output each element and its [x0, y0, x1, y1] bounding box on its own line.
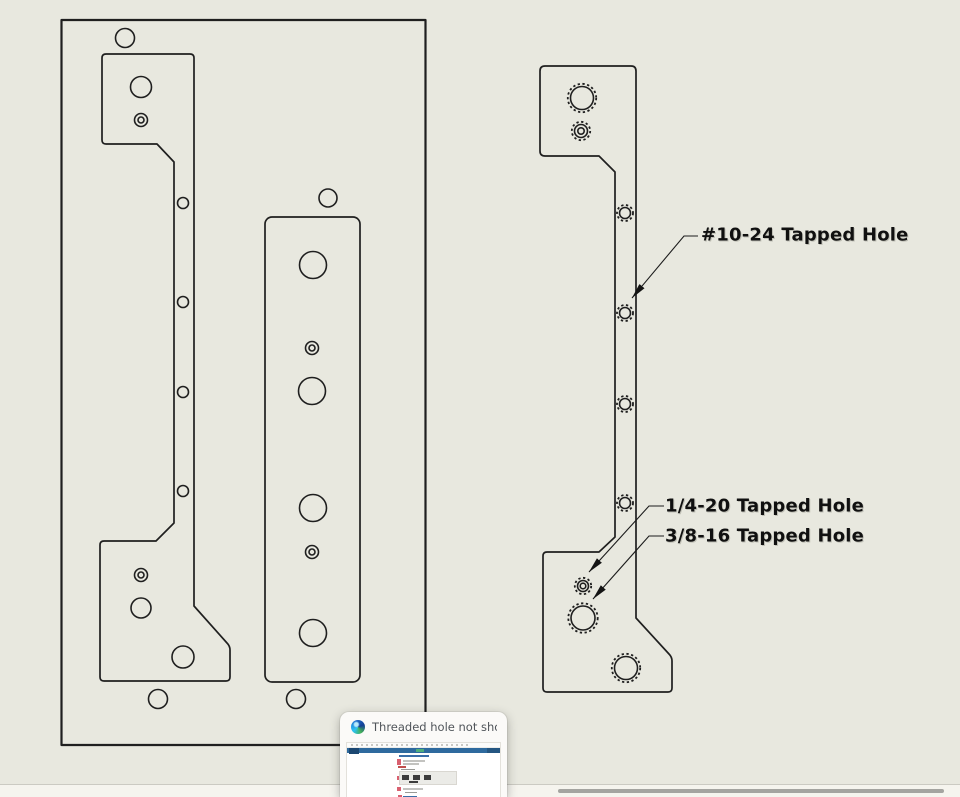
hole[interactable] — [300, 620, 327, 647]
hole[interactable] — [131, 77, 152, 98]
thumb-forum-logo — [349, 748, 359, 754]
hole[interactable] — [138, 117, 144, 123]
cosmetic-thread-rings — [568, 84, 640, 682]
bracket-part-holes — [116, 29, 195, 709]
hole[interactable] — [319, 189, 337, 207]
hole[interactable] — [138, 572, 144, 578]
thumb-text-line — [403, 763, 419, 765]
tapped-hole[interactable] — [578, 581, 589, 592]
thumb-navbar-right — [487, 748, 500, 753]
hole[interactable] — [299, 378, 326, 405]
thumb-quote-box — [399, 771, 457, 785]
hole[interactable] — [172, 646, 194, 668]
hole[interactable] — [309, 549, 315, 555]
popup-header: Threaded hole not showin... — [340, 712, 507, 739]
note-10-24-tapped-hole[interactable]: #10-24 Tapped Hole — [701, 225, 909, 246]
bracket-part-outline[interactable] — [100, 54, 230, 681]
tapped-hole[interactable] — [615, 657, 638, 680]
tapped-hole[interactable] — [620, 399, 631, 410]
cad-drawing — [0, 0, 960, 797]
tapped-hole[interactable] — [571, 87, 594, 110]
hole[interactable] — [135, 114, 148, 127]
edge-tab-preview-popup[interactable]: Threaded hole not showin... — [340, 712, 507, 797]
leader-10-24[interactable] — [632, 236, 698, 298]
leader-3-8-16[interactable] — [593, 536, 664, 599]
tapped-hole[interactable] — [575, 125, 588, 138]
thumb-avatar — [397, 787, 401, 791]
thumb-attachment — [402, 775, 409, 780]
plate-part-holes — [287, 189, 338, 709]
hole[interactable] — [306, 546, 319, 559]
hole[interactable] — [178, 486, 189, 497]
thumb-text-line — [401, 769, 415, 771]
hole[interactable] — [135, 569, 148, 582]
thumb-avatar — [397, 759, 401, 765]
thumb-text-line — [403, 760, 425, 762]
thumb-chrome-text — [351, 744, 471, 746]
hole[interactable] — [116, 29, 135, 48]
hole[interactable] — [178, 297, 189, 308]
tapped-hole[interactable] — [620, 208, 631, 219]
thumb-thread-title — [399, 755, 429, 757]
stock-sheet-outline[interactable] — [62, 20, 426, 745]
plate-part-outline[interactable] — [265, 217, 360, 682]
tapped-hole[interactable] — [620, 308, 631, 319]
hole[interactable] — [300, 495, 327, 522]
hole[interactable] — [131, 598, 151, 618]
note-3-8-16-tapped-hole[interactable]: 3/8-16 Tapped Hole — [665, 526, 864, 547]
thumb-attachment — [413, 775, 420, 780]
solidworks-graphics-area: #10-24 Tapped Hole 1/4-20 Tapped Hole 3/… — [0, 0, 960, 797]
thumb-text-line — [403, 788, 423, 790]
hole[interactable] — [300, 252, 327, 279]
tapped-hole[interactable] — [578, 128, 584, 134]
hole[interactable] — [178, 198, 189, 209]
thumb-green-button — [416, 749, 424, 752]
tapped-hole[interactable] — [571, 606, 595, 630]
tapped-hole[interactable] — [580, 583, 586, 589]
hole[interactable] — [306, 342, 319, 355]
threaded-bracket-holes — [568, 84, 640, 682]
hole[interactable] — [287, 690, 306, 709]
note-1-4-20-tapped-hole[interactable]: 1/4-20 Tapped Hole — [665, 496, 864, 517]
horizontal-scrollbar-thumb[interactable] — [558, 789, 944, 793]
tapped-hole[interactable] — [620, 498, 631, 509]
hole[interactable] — [149, 690, 168, 709]
thumb-attachment — [424, 775, 431, 780]
thumb-attachment-label — [409, 781, 418, 783]
hole[interactable] — [309, 345, 315, 351]
hole[interactable] — [178, 387, 189, 398]
edge-browser-icon — [351, 720, 365, 734]
webpage-thumbnail[interactable] — [346, 742, 501, 797]
threaded-bracket-outline[interactable] — [540, 66, 672, 692]
popup-title: Threaded hole not showin... — [372, 720, 497, 734]
thumb-text-line — [405, 792, 417, 794]
